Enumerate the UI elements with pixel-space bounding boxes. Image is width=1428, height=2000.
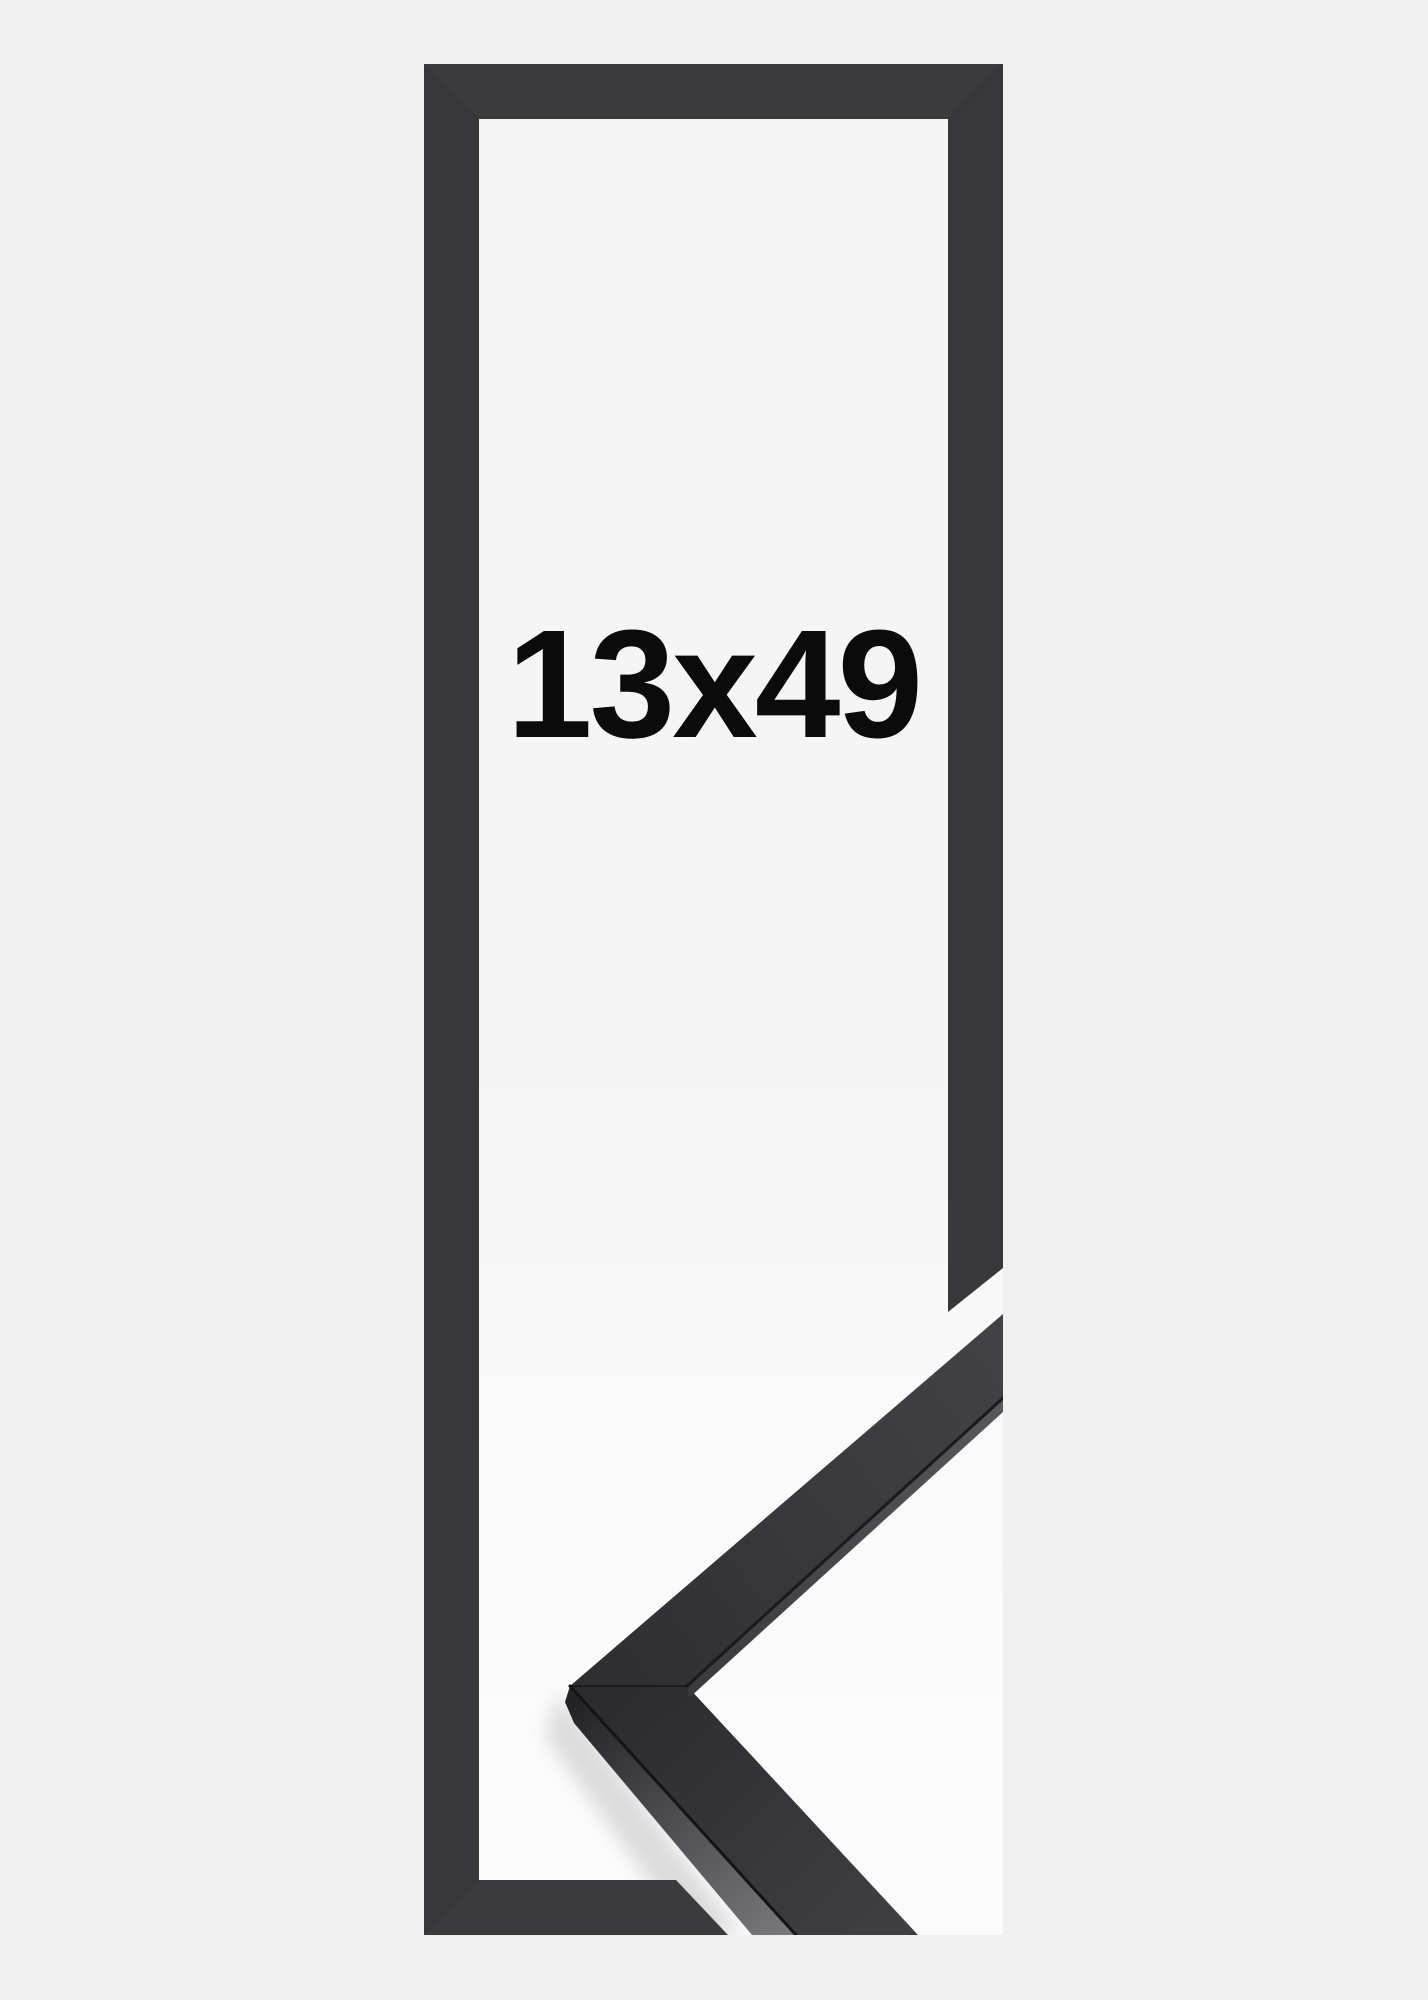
frame-left-bar (424, 64, 479, 1935)
frame-product-image: 13x49 (0, 0, 1428, 2000)
frame-size-label: 13x49 (424, 607, 1003, 761)
frame-mockup-graphic (0, 0, 1428, 2000)
frame-top-bar (424, 64, 1003, 119)
